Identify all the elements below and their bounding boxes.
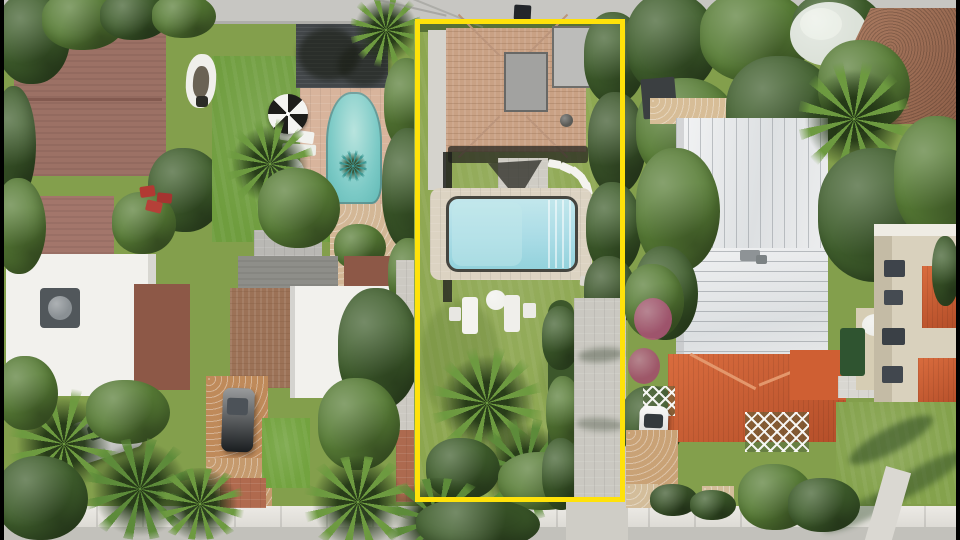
bougie-flower-1 — [634, 298, 672, 340]
red-chair-1 — [139, 185, 155, 198]
driveway-apron — [566, 501, 628, 540]
letterbox-right — [956, 0, 960, 540]
brown-deck-left — [134, 284, 190, 390]
property-highlight-box — [415, 19, 625, 502]
cream-roofline — [874, 224, 956, 236]
ac-fan — [48, 296, 72, 320]
bl-palm-3 — [148, 468, 252, 540]
mauve-ridge — [18, 98, 162, 101]
tl-tree-4 — [152, 0, 216, 38]
white-flower-hi — [800, 8, 842, 40]
tree-br-2 — [788, 478, 860, 532]
brown-tile-roof — [230, 288, 292, 388]
boat-motor — [196, 96, 208, 107]
pool-palm-mosaic — [339, 148, 367, 184]
bougie-flower-2 — [628, 348, 660, 384]
bush-cl-2 — [258, 168, 340, 248]
cream-window-4 — [882, 366, 903, 383]
turf-patch — [262, 418, 310, 488]
black-car-glass — [227, 398, 249, 416]
screenshot-frame — [0, 0, 960, 540]
orange-stair-2 — [918, 358, 956, 408]
white-flat-edge — [290, 286, 295, 398]
roof-vent-2 — [756, 255, 767, 264]
cream-window-1 — [884, 260, 905, 277]
aerial-photo — [4, 0, 956, 540]
bl-tree-2 — [86, 380, 170, 444]
rt-edge-bush — [932, 236, 956, 306]
green-tarp — [840, 328, 865, 376]
letterbox-left — [0, 0, 4, 540]
white-car-glass — [644, 414, 663, 429]
cream-window-2 — [884, 290, 903, 305]
cream-house-shade — [874, 224, 892, 414]
cream-window-3 — [882, 328, 905, 345]
hedge-bottom-2 — [690, 490, 736, 520]
pergola-lattice — [745, 412, 809, 452]
